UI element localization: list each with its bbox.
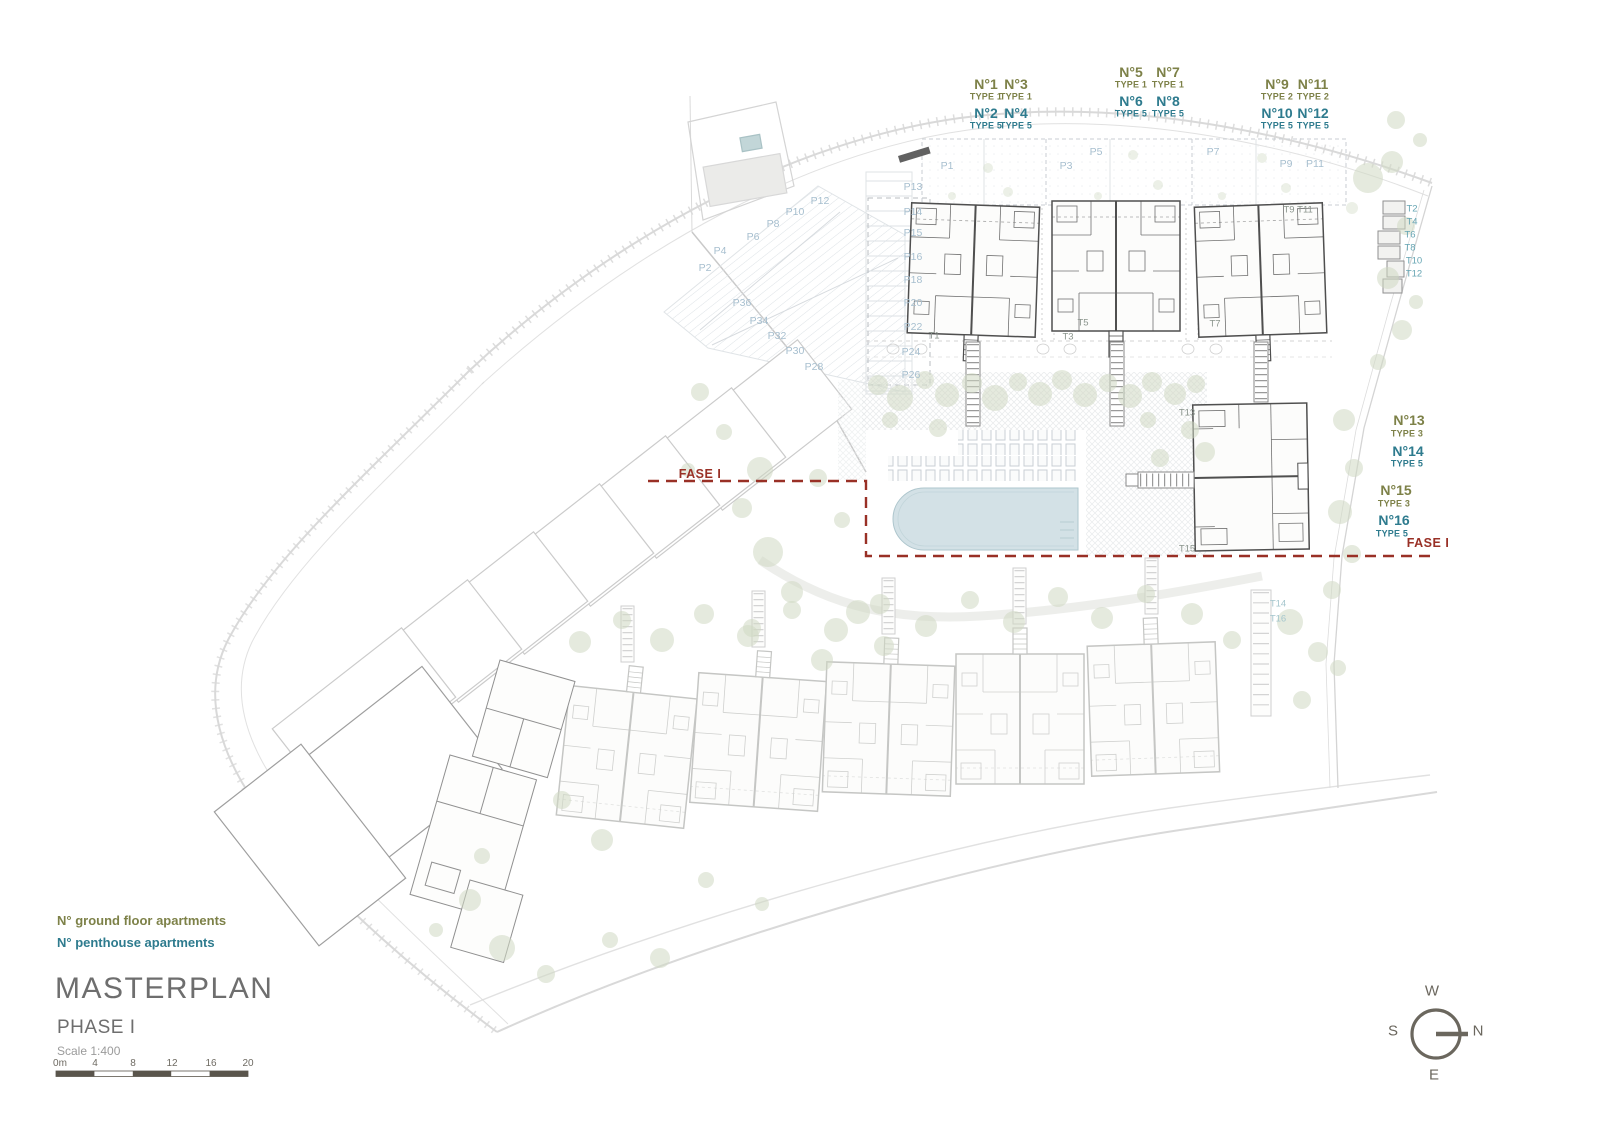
label-t13: T13 — [1179, 408, 1195, 418]
label-n-15: N°15 — [1380, 483, 1411, 497]
label-4: 4 — [92, 1059, 98, 1069]
label-p5: P5 — [1090, 147, 1103, 158]
label-16: 16 — [205, 1059, 216, 1069]
label-p15: P15 — [904, 228, 923, 239]
legend-penthouse: N° penthouse apartments — [57, 936, 215, 949]
label-type-3: TYPE 3 — [1391, 430, 1423, 439]
label-p18: P18 — [904, 275, 923, 286]
label-type-2: TYPE 2 — [1297, 93, 1329, 102]
compass-rose — [1412, 1010, 1468, 1058]
compass-south-label: S — [1388, 1024, 1398, 1039]
label-n-16: N°16 — [1378, 513, 1409, 527]
label-n-1: N°1 — [974, 77, 998, 91]
label-p20: P20 — [904, 298, 923, 309]
label-n-3: N°3 — [1004, 77, 1028, 91]
label-t15: T15 — [1179, 544, 1195, 554]
label-n-5: N°5 — [1119, 65, 1143, 79]
label-p26: P26 — [902, 370, 921, 381]
label-type-5: TYPE 5 — [1115, 110, 1147, 119]
label-p4: P4 — [714, 246, 727, 257]
label-type-5: TYPE 5 — [1152, 110, 1184, 119]
label-t2: T2 — [1406, 204, 1417, 214]
label-p2: P2 — [699, 263, 712, 274]
label-p8: P8 — [767, 219, 780, 230]
label-p12: P12 — [811, 196, 830, 207]
label-n-12: N°12 — [1297, 106, 1328, 120]
label-20: 20 — [242, 1059, 253, 1069]
label-n-4: N°4 — [1004, 106, 1028, 120]
label-n-2: N°2 — [974, 106, 998, 120]
label-type-5: TYPE 5 — [970, 122, 1002, 131]
label-type-5: TYPE 5 — [1297, 122, 1329, 131]
storage-ladder-t14-t16 — [1251, 590, 1271, 716]
masterplan-page: N°1TYPE 1N°2TYPE 5N°3TYPE 1N°4TYPE 5N°5T… — [0, 0, 1600, 1132]
building-n13-n16 — [1193, 403, 1310, 551]
label-p32: P32 — [768, 331, 787, 342]
label-n-9: N°9 — [1265, 77, 1289, 91]
label-p24: P24 — [902, 347, 921, 358]
label-p13: P13 — [904, 182, 923, 193]
context-buildings-layer — [214, 102, 851, 946]
label-t9: T9 — [1283, 205, 1294, 215]
label-type-1: TYPE 1 — [970, 93, 1002, 102]
compass-west-label: W — [1425, 984, 1439, 999]
label-type-1: TYPE 1 — [1115, 81, 1147, 90]
sun-loungers-row — [958, 430, 1076, 455]
label-t6: T6 — [1404, 230, 1415, 240]
label-p16: P16 — [904, 252, 923, 263]
label-n-8: N°8 — [1156, 94, 1180, 108]
compass-east-label: E — [1429, 1068, 1439, 1083]
label-8: 8 — [130, 1059, 136, 1069]
label-p3: P3 — [1060, 161, 1073, 172]
label-p10: P10 — [786, 207, 805, 218]
label-p1: P1 — [941, 161, 954, 172]
label-t1: T1 — [928, 331, 939, 341]
label-type-3: TYPE 3 — [1378, 500, 1410, 509]
label-p7: P7 — [1207, 147, 1220, 158]
label-n-14: N°14 — [1392, 444, 1423, 458]
label-t5: T5 — [1077, 318, 1088, 328]
label-12: 12 — [166, 1059, 177, 1069]
label-t10: T10 — [1406, 256, 1422, 266]
label-type-5: TYPE 5 — [1000, 122, 1032, 131]
label-p9: P9 — [1280, 159, 1293, 170]
label-p11: P11 — [1306, 159, 1324, 170]
label-n-10: N°10 — [1261, 106, 1292, 120]
label-n-6: N°6 — [1119, 94, 1143, 108]
page-title: MASTERPLAN — [55, 972, 273, 1006]
label-t16: T16 — [1270, 614, 1286, 624]
label-t12: T12 — [1406, 269, 1422, 279]
label-0m: 0m — [53, 1059, 67, 1069]
label-n-11: N°11 — [1298, 77, 1329, 91]
label-t7: T7 — [1209, 319, 1220, 329]
label-t3: T3 — [1062, 332, 1073, 342]
label-p34: P34 — [750, 316, 769, 327]
label-fase-i: FASE I — [679, 468, 722, 481]
label-type-1: TYPE 1 — [1000, 93, 1032, 102]
label-p28: P28 — [805, 362, 824, 373]
label-t8: T8 — [1404, 243, 1415, 253]
label-type-2: TYPE 2 — [1261, 93, 1293, 102]
label-type-5: TYPE 5 — [1261, 122, 1293, 131]
label-n-13: N°13 — [1393, 413, 1424, 427]
label-type-5: TYPE 5 — [1376, 530, 1408, 539]
label-t14: T14 — [1270, 599, 1286, 609]
sun-loungers-row — [888, 456, 1076, 481]
masterplan-drawing — [0, 0, 1600, 1132]
compass-north-label: N — [1473, 1024, 1484, 1039]
scale-label: Scale 1:400 — [57, 1044, 120, 1058]
label-n-7: N°7 — [1156, 65, 1180, 79]
label-t11: T11 — [1297, 205, 1313, 215]
label-p6: P6 — [747, 232, 760, 243]
scale-bar — [56, 1071, 248, 1077]
label-p30: P30 — [786, 346, 805, 357]
label-p36: P36 — [733, 298, 752, 309]
label-p22: P22 — [904, 322, 923, 333]
label-type-5: TYPE 5 — [1391, 460, 1423, 469]
label-p14: P14 — [904, 207, 923, 218]
label-type-1: TYPE 1 — [1152, 81, 1184, 90]
pool — [888, 430, 1078, 550]
legend-ground-floor: N° ground floor apartments — [57, 914, 226, 927]
label-t4: T4 — [1406, 217, 1417, 227]
phase-subtitle: PHASE I — [57, 1017, 135, 1039]
label-fase-i: FASE I — [1407, 537, 1450, 550]
